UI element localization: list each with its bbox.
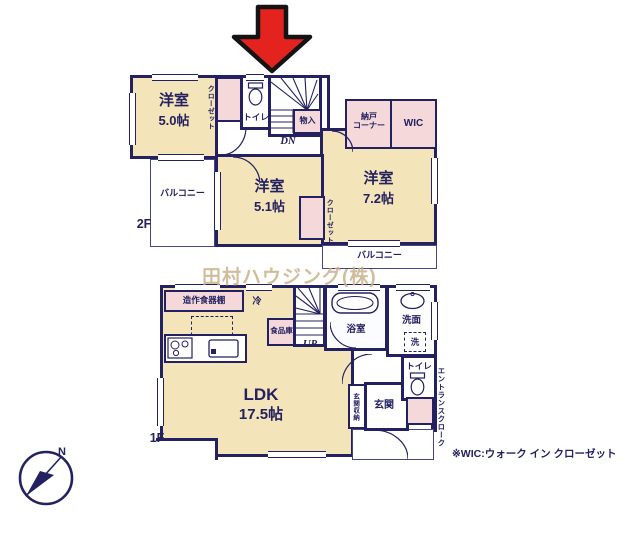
floor1-label: 1F (144, 431, 170, 446)
fridge-label: 冷 (246, 296, 268, 307)
stairs-up-label: UP (294, 339, 326, 351)
nando-label: 納戸 コーナー (345, 112, 393, 131)
room-5-1-name: 洋室 (215, 178, 324, 196)
window (158, 154, 204, 161)
ldk-size: 17.5帖 (223, 406, 299, 424)
entrance-label: 玄関 (364, 400, 404, 412)
entrance-cloak-box (406, 397, 434, 425)
door-arc (221, 127, 247, 155)
washroom-label: 洗面 (386, 315, 437, 326)
compass-icon: N (10, 441, 80, 511)
wic-label: WIC (390, 118, 437, 130)
cupboard-label: 造作食器棚 (164, 295, 244, 305)
room-5-0-size: 5.0帖 (130, 113, 218, 128)
window (157, 378, 164, 426)
toilet-1f-label: トイレ (401, 361, 437, 371)
pantry-label: 食品庫 (267, 327, 296, 336)
wic-footnote: ※WIC:ウォーク イン クローゼット (452, 446, 617, 461)
toilet-icon (409, 372, 426, 396)
entrance-arrow-icon (228, 4, 318, 76)
toilet-icon (247, 82, 264, 106)
stove-icon (167, 337, 193, 359)
watermark-text: 田村ハウジング(株) (202, 262, 412, 289)
window (152, 74, 198, 81)
window (268, 451, 326, 458)
door-arc (374, 430, 408, 459)
bathtub-icon (331, 292, 379, 314)
sink-icon (399, 291, 426, 310)
door-arc (342, 354, 372, 384)
storage-2f-label: 物入 (293, 116, 322, 125)
room-7-2-size: 7.2帖 (320, 191, 437, 206)
stairs-dn-label: DN (272, 136, 304, 148)
stairs-icon (296, 288, 323, 344)
entrance-storage-label: 玄関収納 (351, 387, 359, 427)
kitchen-sink-icon (208, 339, 239, 358)
balcony-left (150, 159, 215, 247)
laundry-label: 洗 (404, 337, 426, 347)
entrance-cloak-label: エントランスクローク (436, 361, 445, 453)
window (348, 240, 400, 247)
ldk-name: LDK (231, 385, 291, 405)
balcony-bottom-label: バルコニー (322, 250, 437, 261)
room-5-0-name: 洋室 (130, 92, 218, 110)
compass-north-label: N (58, 446, 66, 458)
door-arc (332, 131, 353, 152)
closet-left-label: クローゼット (206, 79, 214, 135)
floor-plan: 洋室 5.0帖 洋室 5.1帖 洋室 7.2帖 クローゼット クローゼット トイ… (0, 0, 640, 533)
bath-label: 浴室 (324, 324, 388, 335)
floor2-label: 2F (130, 217, 158, 232)
room-7-2-name: 洋室 (320, 170, 437, 188)
room-5-1-size: 5.1帖 (215, 199, 324, 214)
balcony-left-label: バルコニー (150, 188, 215, 199)
closet-right-label: クローゼット (325, 193, 333, 249)
toilet-2f-label: トイレ (242, 112, 270, 122)
closet-2f-left (216, 77, 242, 122)
